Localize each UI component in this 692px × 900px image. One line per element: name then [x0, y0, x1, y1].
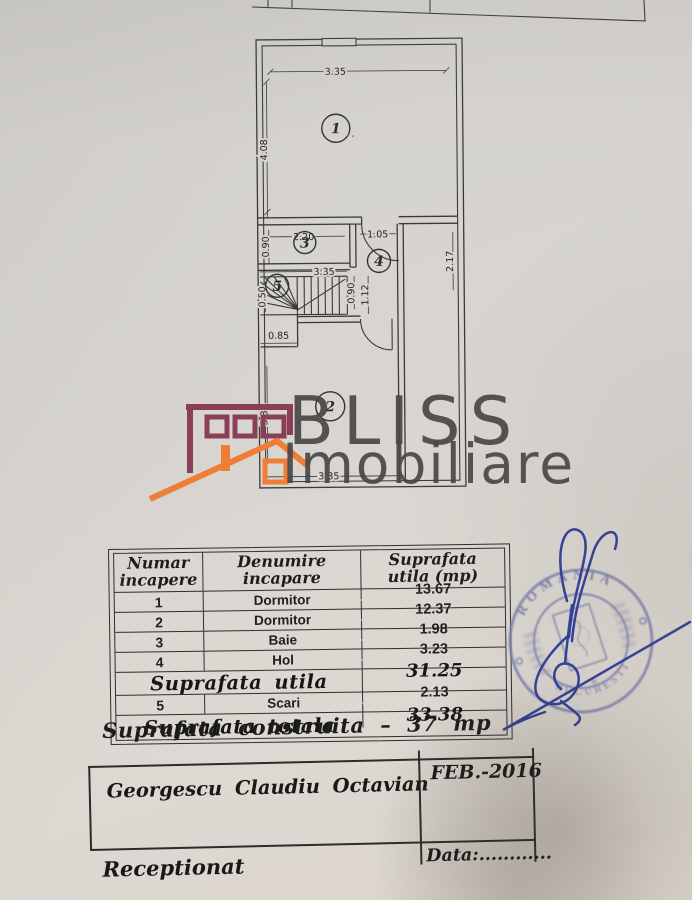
row-number: 1 [115, 592, 203, 612]
dim-stairs-width: 3.35 [313, 267, 334, 278]
header-numar: Numarincapere [114, 553, 203, 592]
row-name: Dormitor [203, 589, 361, 610]
row-name: Baie [203, 629, 361, 650]
room-label-5: 5 [266, 274, 289, 297]
room-label-4: 4 [367, 249, 390, 272]
dim-stairs-run: 0.90 [346, 282, 357, 303]
dim-stairs-bottom: 0.85 [268, 331, 289, 342]
svg-text:3: 3 [300, 235, 310, 251]
plan-speck [347, 134, 349, 136]
footer-left-border [88, 766, 91, 850]
row-number: 4 [115, 652, 203, 672]
subtotal-label: Suprafata utila [116, 669, 362, 695]
window-top [322, 38, 356, 46]
row-name: Dormitor [203, 609, 361, 630]
top-cutoff-table-fragment [0, 0, 692, 30]
dim-room3-height: 0.90 [261, 236, 272, 257]
footer-divider [418, 750, 422, 864]
row-number: 2 [115, 612, 203, 632]
logo-subtitle: Imobiliare [282, 437, 575, 492]
svg-text:1: 1 [331, 121, 341, 137]
dim-hall-side: 2.17 [445, 251, 456, 272]
room-label-1: 1 [322, 114, 350, 142]
author-name: Georgescu Claudiu Octavian [106, 772, 428, 802]
svg-text:5: 5 [272, 279, 282, 295]
plan-speck [352, 135, 354, 137]
dim-hall-width: 1.05 [367, 229, 388, 240]
footer-box: Georgescu Claudiu Octavian FEB.-2016 Dat… [88, 748, 537, 886]
header-denumire: Denumireincapare [202, 550, 361, 590]
data-label: Data:............ [426, 844, 552, 867]
received-label: Receptionat [102, 853, 244, 881]
row-name: Hol [203, 649, 361, 670]
dim-stairs-run2: 1.12 [360, 284, 371, 305]
row-name: Scari [204, 692, 362, 713]
dim-top-width: 3.35 [325, 67, 346, 78]
row-number: 5 [116, 695, 204, 715]
dim-room1-height: 4.08 [259, 139, 270, 160]
row-number: 3 [115, 632, 203, 652]
door-room2 [360, 319, 392, 350]
svg-text:4: 4 [374, 254, 384, 270]
signature [455, 505, 692, 745]
date-value: FEB.-2016 [430, 760, 542, 785]
